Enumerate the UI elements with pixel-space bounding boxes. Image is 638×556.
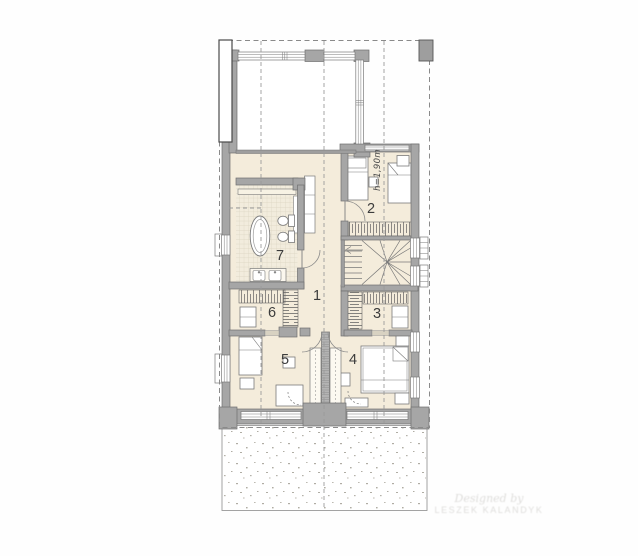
double-washbasin — [250, 269, 286, 282]
terrace-stipple — [223, 427, 426, 510]
window — [411, 265, 429, 287]
nightstand — [397, 156, 409, 167]
bidet — [278, 231, 295, 243]
knee-wall-height-note: h=1,90m — [373, 149, 383, 191]
bathroom-right-wall — [298, 185, 305, 250]
room-label-2: 2 — [367, 201, 375, 217]
room3-room4-wall — [344, 330, 372, 336]
window — [411, 332, 420, 352]
terrace — [222, 426, 427, 511]
room-label-1: 1 — [313, 288, 321, 304]
door-threshold — [372, 331, 389, 336]
stair-railing — [341, 240, 345, 287]
wall-block — [279, 327, 297, 337]
void-open-below — [237, 60, 356, 150]
wardrobe-hatch — [349, 222, 411, 236]
room6-room5-wall — [229, 330, 265, 336]
hall-right-wall — [341, 291, 348, 336]
floor-plan-drawing — [0, 0, 638, 556]
bathroom-shelf — [238, 189, 296, 195]
room-label-6: 6 — [268, 305, 276, 321]
window — [215, 234, 230, 256]
toilet — [278, 215, 295, 227]
hall-cabinet — [305, 176, 316, 233]
room-label-5: 5 — [281, 352, 289, 368]
wardrobe-hatch — [363, 292, 408, 304]
wardrobe-hatch — [283, 290, 298, 327]
door-post — [300, 328, 310, 336]
nightstand — [396, 336, 409, 347]
room-label-7: 7 — [276, 248, 284, 264]
window — [241, 412, 301, 420]
void-railing — [236, 150, 356, 154]
bed — [388, 163, 411, 203]
window — [347, 412, 408, 420]
chimney — [219, 40, 232, 142]
top-wall-pier — [305, 50, 324, 62]
window — [411, 377, 420, 398]
room-label-4: 4 — [349, 352, 357, 368]
stairs-bottom-wall — [341, 285, 418, 291]
bathroom-top-wall — [236, 178, 298, 185]
floor-plan-page: 1 2 3 4 5 6 7 h=1,90m Designed by LESZEK… — [0, 0, 638, 556]
window — [324, 52, 355, 60]
wardrobe-hatch — [239, 290, 285, 303]
chimney — [419, 40, 433, 61]
desk — [276, 385, 303, 406]
window — [411, 237, 429, 259]
window — [356, 60, 364, 144]
window — [215, 354, 230, 383]
hall-right-wall — [341, 153, 348, 201]
closet-stairs-wall — [341, 236, 411, 240]
bed — [239, 337, 262, 375]
door-threshold — [265, 331, 279, 336]
window — [365, 145, 409, 151]
bathroom-bottom-wall — [229, 282, 304, 289]
window — [238, 52, 305, 60]
room-label-3: 3 — [373, 306, 381, 322]
dresser — [345, 398, 368, 407]
room3-room4-wall — [389, 330, 412, 336]
nightstand — [395, 393, 409, 404]
nightstand — [240, 378, 254, 389]
